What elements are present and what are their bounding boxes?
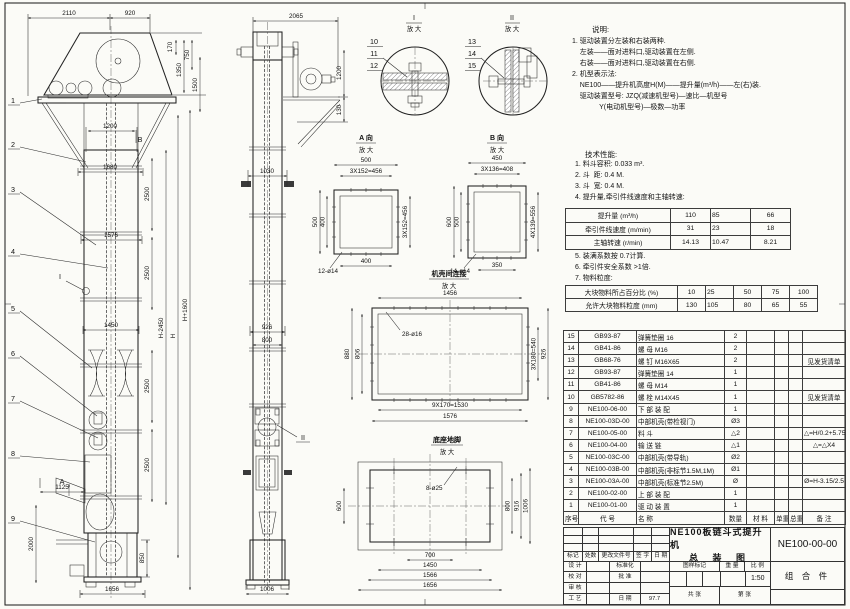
drawing-number: NE100-00-00 [771,528,844,562]
table-cell: NE100-02-00 [579,488,637,500]
dim-label: 1030 [260,168,275,175]
table-cell [775,415,789,427]
dim-label: 400 [320,216,327,227]
base-anchor-plan: 底座地脚 放 大 8-ø25 600 800 916 1006 700 1450… [336,435,530,590]
role-design: 设 计 [564,562,587,572]
holes-note: 28-ø16 [402,331,422,338]
table-cell: 5 [564,451,579,463]
table-cell [747,427,775,439]
dim-label: 600 [336,500,343,511]
table-row: 允许大块物料粒度 (mm)130105806555 [566,299,818,312]
table-cell: 8 [564,415,579,427]
table-cell: NE100-03C-00 [579,451,637,463]
table-cell [803,403,846,415]
table-cell [803,379,846,391]
dim-label: 4X139=556 [530,205,537,238]
table-cell: 螺 栓 M14X45 [637,391,725,403]
table-cell: 15 [564,331,579,343]
role-date-value: 97.7 [641,594,668,604]
text-line: 2. 斗 距: 0.4 M. [575,171,840,182]
detail-section-i: I 放 大 10 11 12 [367,13,449,117]
table-cell: 2 [725,355,747,367]
table-row: 9NE100-06-00下 部 装 配1 [564,403,846,415]
table-cell [775,439,789,451]
dim-label: 170 [167,41,174,52]
table-cell: 中部机壳(带导轨) [637,451,725,463]
dim-label: 3X136=408 [481,166,514,173]
table-row: 11GB41-86螺 母 M141 [564,379,846,391]
table-row: 大块物料所占百分比 (%)10255075100 [566,286,818,299]
table-row: 4NE100-03B-00中部机壳(非标节1.5M,1M)Ø1 [564,464,846,476]
material-size-table: 大块物料所占百分比 (%)10255075100允许大块物料粒度 (mm)130… [565,285,818,312]
dim-label: 2110 [62,10,76,17]
dim-label: 1576 [104,232,119,239]
table-cell [747,367,775,379]
table-cell [803,451,846,463]
table-cell: NE100-03B-00 [579,464,637,476]
table-cell [747,500,775,512]
table-cell: NE100-01-00 [579,500,637,512]
balloon-1: 1 [11,96,15,105]
text-line: 2. 机型表示法: [572,69,840,80]
role-value [641,572,668,582]
table-cell: 1 [564,500,579,512]
detail-section-ii: II 放 大 13 14 15 [465,13,547,117]
table-cell [747,439,775,451]
table-cell: 单重 [775,512,789,524]
dim-label: 1450 [423,562,438,569]
dim-label: H [170,333,177,338]
table-cell: 12 [564,367,579,379]
table-row: 15GB93-87弹簧垫圈 162 [564,331,846,343]
table-row: 10GB5782-86螺 栓 M14X451见发货清单 [564,391,846,403]
notes-title: 说明: [592,24,609,35]
dim-label: 1200 [103,123,118,130]
balloon-8: 8 [11,449,15,458]
table-cell: 10 [678,286,706,299]
role-approve: 批 准 [610,572,641,582]
dim-label: 2500 [144,458,151,473]
front-elevation-view [38,26,176,600]
table-cell [789,367,803,379]
tech-specs-title: 技术性能: [585,149,617,160]
dim-label: 3X152=456 [350,168,383,175]
balloon-6: 6 [11,349,15,358]
table-cell [789,451,803,463]
text-line: 7. 物料粒度: [575,274,840,285]
table-cell: 驱 动 装 置 [637,500,725,512]
table-cell [775,367,789,379]
section-ii-mark: II [301,433,305,442]
balloon-3: 3 [11,185,15,194]
table-cell: GB41-86 [579,379,637,391]
table-cell: NE100-03D-00 [579,415,637,427]
table-cell [747,415,775,427]
table-cell: Ø=H-3.15/2.5 [803,476,846,488]
table-cell [789,476,803,488]
rev-header-docno: 更改文件号 [599,552,633,561]
table-cell [775,427,789,439]
text-line: 左装——面对进料口,驱动装置在左侧. [572,47,840,58]
table-cell: 允许大块物料粒度 (mm) [566,299,678,312]
table-cell: GB41-86 [579,343,637,355]
dim-label: 2065 [289,13,304,20]
casing-joint-title: 机壳间连接 [432,269,467,278]
dim-label: 600 [446,216,453,227]
table-cell: △=△X4 [803,439,846,451]
role-value [641,562,668,572]
role-value [587,594,610,604]
dim-label: 926 [262,324,273,331]
drawing-sheet: 2110 920 170 750 1350 1500 1200 B 1680 1… [0,0,850,609]
table-cell: 见发货清单 [803,391,846,403]
table-cell: 料 斗 [637,427,725,439]
view-b-detail: B 向 放 大 450 3X136=408 600 500 4X139=556 … [446,133,538,275]
table-cell: 10 [564,391,579,403]
table-cell [747,488,775,500]
table-cell [747,451,775,463]
view-a-mark: A [60,477,65,486]
role-value [587,562,610,572]
table-cell: 65 [762,299,790,312]
table-cell: 中部机壳(带检视门) [637,415,725,427]
table-cell: △2 [725,427,747,439]
table-cell: 7 [564,427,579,439]
balloon-2: 2 [11,140,15,149]
dim-label: 700 [425,552,436,559]
table-row: 2NE100-02-00上 部 装 配1 [564,488,846,500]
table-cell [775,476,789,488]
table-cell: 130 [678,299,706,312]
view-a-detail: A 向 放 大 500 3X152=456 500 400 3X152=456 … [312,133,410,275]
table-cell: 弹簧垫圈 16 [637,331,725,343]
table-cell: 18 [751,222,791,236]
table-row: 提升量 (m³/h)1108566 [566,209,791,223]
weight-label: 重 量 [720,562,745,571]
table-cell: 序号 [564,512,579,524]
dim-label: 850 [139,552,146,563]
table-cell: 1 [725,367,747,379]
table-cell: 100 [790,286,818,299]
table-cell [775,488,789,500]
dim-label: 1006 [523,499,530,514]
table-cell: 材 料 [747,512,775,524]
balloon-4: 4 [11,247,15,256]
table-cell: NE100-05-00 [579,427,637,439]
detail-i-label: I [413,13,415,22]
dim-label: 130 [336,104,343,115]
role-value [587,583,610,593]
dim-label: 926 [541,348,548,359]
table-cell: 主轴转速 (r/min) [566,236,671,250]
dim-label: 3X152=456 [402,205,409,238]
table-cell: 名 称 [637,512,725,524]
table-cell: 1 [725,500,747,512]
table-cell [789,415,803,427]
dim-label: 1656 [423,582,438,589]
view-b-mark: B [138,135,143,144]
table-cell: 8.21 [751,236,791,250]
dim-label: 1656 [105,586,120,593]
holes-note: 12-ø14 [318,268,338,275]
view-b-scale: 放 大 [490,145,505,154]
table-cell: 备 注 [803,512,846,524]
tech-specs-list-2: 5. 装满系数按 0.7计算.6. 牵引件安全系数 >1倍.7. 物料粒度: [575,252,840,285]
table-cell: 85 [711,209,751,223]
table-cell [789,343,803,355]
table-cell: 66 [751,209,791,223]
text-line: 3. 斗 宽: 0.4 M. [575,182,840,193]
table-cell [789,427,803,439]
role-value [641,583,668,593]
dim-label: 450 [492,155,503,162]
table-cell [775,391,789,403]
table-cell [803,415,846,427]
balloon-14: 14 [468,49,476,58]
table-cell: △1 [725,439,747,451]
table-cell [789,379,803,391]
table-cell: 中部机壳(标准节2.5M) [637,476,725,488]
role-date-label: 日 期 [610,594,641,604]
dim-label: 800 [262,337,273,344]
text-line: 1. 料斗容积: 0.033 m³. [575,160,840,171]
casing-joint-scale: 放 大 [442,281,457,290]
table-cell: 提升量 (m³/h) [566,209,671,223]
table-row: 12GB93-87弹簧垫圈 141 [564,367,846,379]
balloon-5: 5 [11,304,15,313]
table-cell: 23 [711,222,751,236]
role-value [587,572,610,582]
table-cell [789,355,803,367]
table-cell: NE100-04-00 [579,439,637,451]
table-cell: 9 [564,403,579,415]
dim-label: 2500 [144,187,151,202]
table-cell: 13 [564,355,579,367]
role-audit: 审 核 [564,583,587,593]
title-block: 标记 处数 更改文件号 签 字 日 期 设 计 标准化 校 对 批 准 审 核 … [563,527,845,605]
table-cell: 14.13 [671,236,711,250]
table-cell [789,331,803,343]
table-cell: Ø2 [725,451,747,463]
table-cell [747,476,775,488]
sheet-number: 第 张 [720,587,769,604]
table-cell: 6 [564,439,579,451]
table-cell: GB68-76 [579,355,637,367]
dim-label: 750 [184,49,191,60]
dim-label: 400 [361,258,372,265]
dim-label: H+1600 [182,298,189,321]
table-cell [803,500,846,512]
performance-table: 提升量 (m³/h)1108566牵引件线速度 (m/min)312318主轴转… [565,208,791,250]
table-cell: 4 [564,464,579,476]
text-line: 4. 提升量,牵引件线速度和主轴转速: [575,193,840,204]
table-row: 牵引件线速度 (m/min)312318 [566,222,791,236]
table-cell: 105 [706,299,734,312]
table-cell [803,488,846,500]
role-check: 校 对 [564,572,587,582]
table-cell: 1 [725,391,747,403]
text-line: Y(电动机型号)—极数—功率 [572,102,840,113]
bom-table: 15GB93-87弹簧垫圈 16214GB41-86螺 母 M16213GB68… [563,330,846,525]
dim-label: 1456 [443,290,458,297]
tech-specs-list: 1. 料斗容积: 0.033 m³.2. 斗 距: 0.4 M.3. 斗 宽: … [575,160,840,203]
table-cell [803,367,846,379]
table-cell [747,331,775,343]
table-row: 主轴转速 (r/min)14.1310.478.21 [566,236,791,250]
table-cell [747,343,775,355]
table-row: 3NE100-03A-00中部机壳(标准节2.5M)ØØ=H-3.15/2.5 [564,476,846,488]
table-cell [789,488,803,500]
text-line: 右装——面对进料口,驱动装置在右侧. [572,58,840,69]
table-cell [789,500,803,512]
dim-label: 916 [514,500,521,511]
table-row: 6NE100-04-00输 送 链△1△=△X4 [564,439,846,451]
table-cell [775,500,789,512]
sheet-total: 共 张 [670,587,720,604]
table-cell [775,331,789,343]
table-cell [789,439,803,451]
text-line: 5. 装满系数按 0.7计算. [575,252,840,263]
product-name: NE100板链斗式提升机 [670,525,770,551]
table-cell: NE100-03A-00 [579,476,637,488]
table-cell: 螺 母 M16 [637,343,725,355]
title-block-center: NE100板链斗式提升机 总 装 图 图样标记 重 量 比 例 1:50 共 张… [670,528,771,604]
table-cell: 1 [725,488,747,500]
rev-header-mark: 标记 [564,552,583,561]
table-cell: 11 [564,379,579,391]
table-cell: 1 [725,403,747,415]
balloon-15: 15 [468,61,476,70]
table-cell: 见发货清单 [803,355,846,367]
table-cell: 1 [725,379,747,391]
table-cell: GB93-87 [579,331,637,343]
table-cell: Ø1 [725,464,747,476]
table-cell: 14 [564,343,579,355]
casing-joint-detail: 机壳间连接 放 大 1456 28-ø16 880 806 3X180=540 … [344,269,548,421]
table-cell: 55 [790,299,818,312]
table-cell: 31 [671,222,711,236]
balloon-7: 7 [11,394,15,403]
table-cell [789,391,803,403]
table-cell: 50 [734,286,762,299]
table-cell [775,464,789,476]
table-cell: GB5782-86 [579,391,637,403]
dim-label: 2500 [144,379,151,394]
table-cell [747,391,775,403]
scale-value: 1:50 [746,572,770,586]
dim-label: 1450 [104,322,119,329]
table-cell: Ø [725,476,747,488]
table-cell: 弹簧垫圈 14 [637,367,725,379]
balloon-10: 10 [370,37,378,46]
table-cell: 10.47 [711,236,751,250]
dim-label: 880 [344,348,351,359]
base-plan-title: 底座地脚 [433,435,461,444]
table-cell: 中部机壳(非标节1.5M,1M) [637,464,725,476]
dim-label: 806 [355,348,362,359]
table-cell: 螺 母 M14 [637,379,725,391]
dim-label: 800 [505,500,512,511]
table-cell: 总重 [789,512,803,524]
rev-header-date: 日 期 [652,552,669,561]
balloon-9: 9 [11,514,15,523]
dim-label: 1200 [336,66,343,81]
base-plan-scale: 放 大 [440,447,455,456]
table-cell: 110 [671,209,711,223]
table-cell [747,379,775,391]
dim-label: 2000 [28,537,35,552]
view-a-title: A 向 [359,133,373,142]
role-process: 工 艺 [564,594,587,604]
table-cell [747,355,775,367]
role-blank [610,583,641,593]
dim-label: H-2450 [158,317,165,338]
table-cell: 数量 [725,512,747,524]
side-elevation-view [237,22,340,595]
table-row: 1NE100-01-00驱 动 装 置1 [564,500,846,512]
table-row: 序号代 号名 称数量材 料单重总重备 注 [564,512,846,524]
table-cell: GB93-87 [579,367,637,379]
role-standardization: 标准化 [610,562,641,572]
scale-label: 比 例 [745,562,770,571]
dim-label: 1566 [423,572,438,579]
dim-label: 1576 [443,413,458,420]
table-cell: 牵引件线速度 (m/min) [566,222,671,236]
notes-section: 1. 驱动装置分左装和右装两种. 左装——面对进料口,驱动装置在左侧. 右装——… [572,36,840,113]
table-row: 13GB68-76螺 钉 M16X652见发货清单 [564,355,846,367]
table-cell: 螺 钉 M16X65 [637,355,725,367]
table-cell [747,403,775,415]
title-block-revision-area: 标记 处数 更改文件号 签 字 日 期 设 计 标准化 校 对 批 准 审 核 … [564,528,670,604]
dim-label: 500 [454,216,461,227]
table-cell: 2 [564,488,579,500]
balloon-13: 13 [468,37,476,46]
table-cell [775,343,789,355]
view-b-title: B 向 [490,133,504,142]
balloon-11: 11 [370,49,377,58]
table-cell [775,355,789,367]
table-row: 8NE100-03D-00中部机壳(带检视门)Ø3 [564,415,846,427]
text-line: 6. 牵引件安全系数 >1倍. [575,263,840,274]
text-line: 1. 驱动装置分左装和右装两种. [572,36,840,47]
table-cell: 输 送 链 [637,439,725,451]
table-cell [747,464,775,476]
dim-label: 1680 [103,164,118,171]
table-cell: 75 [762,286,790,299]
detail-ii-scale: 放 大 [505,24,520,33]
table-cell: 25 [706,286,734,299]
title-block-right: NE100-00-00 组 合 件 [771,528,844,604]
table-cell [789,464,803,476]
balloon-12: 12 [370,61,378,70]
front-view-balloons: 1 2 3 4 5 6 7 8 9 I A [8,96,108,542]
dim-label: 1500 [192,78,199,93]
table-cell [803,464,846,476]
dim-label: 920 [125,10,136,17]
dim-label: 9X170=1530 [432,402,468,409]
table-cell: 2 [725,343,747,355]
dim-label: 500 [312,216,319,227]
detail-ii-label: II [510,13,514,22]
text-line: 驱动装置型号: JZQ(减速机型号)—速比—机型号 [572,91,840,102]
table-cell [789,403,803,415]
table-cell: NE100-06-00 [579,403,637,415]
table-cell: △=H/0.2+5.75 [803,427,846,439]
table-row: 7NE100-05-00料 斗△2△=H/0.2+5.75 [564,427,846,439]
rev-header-count: 处数 [583,552,600,561]
view-a-scale: 放 大 [359,145,374,154]
detail-i-scale: 放 大 [407,24,422,33]
